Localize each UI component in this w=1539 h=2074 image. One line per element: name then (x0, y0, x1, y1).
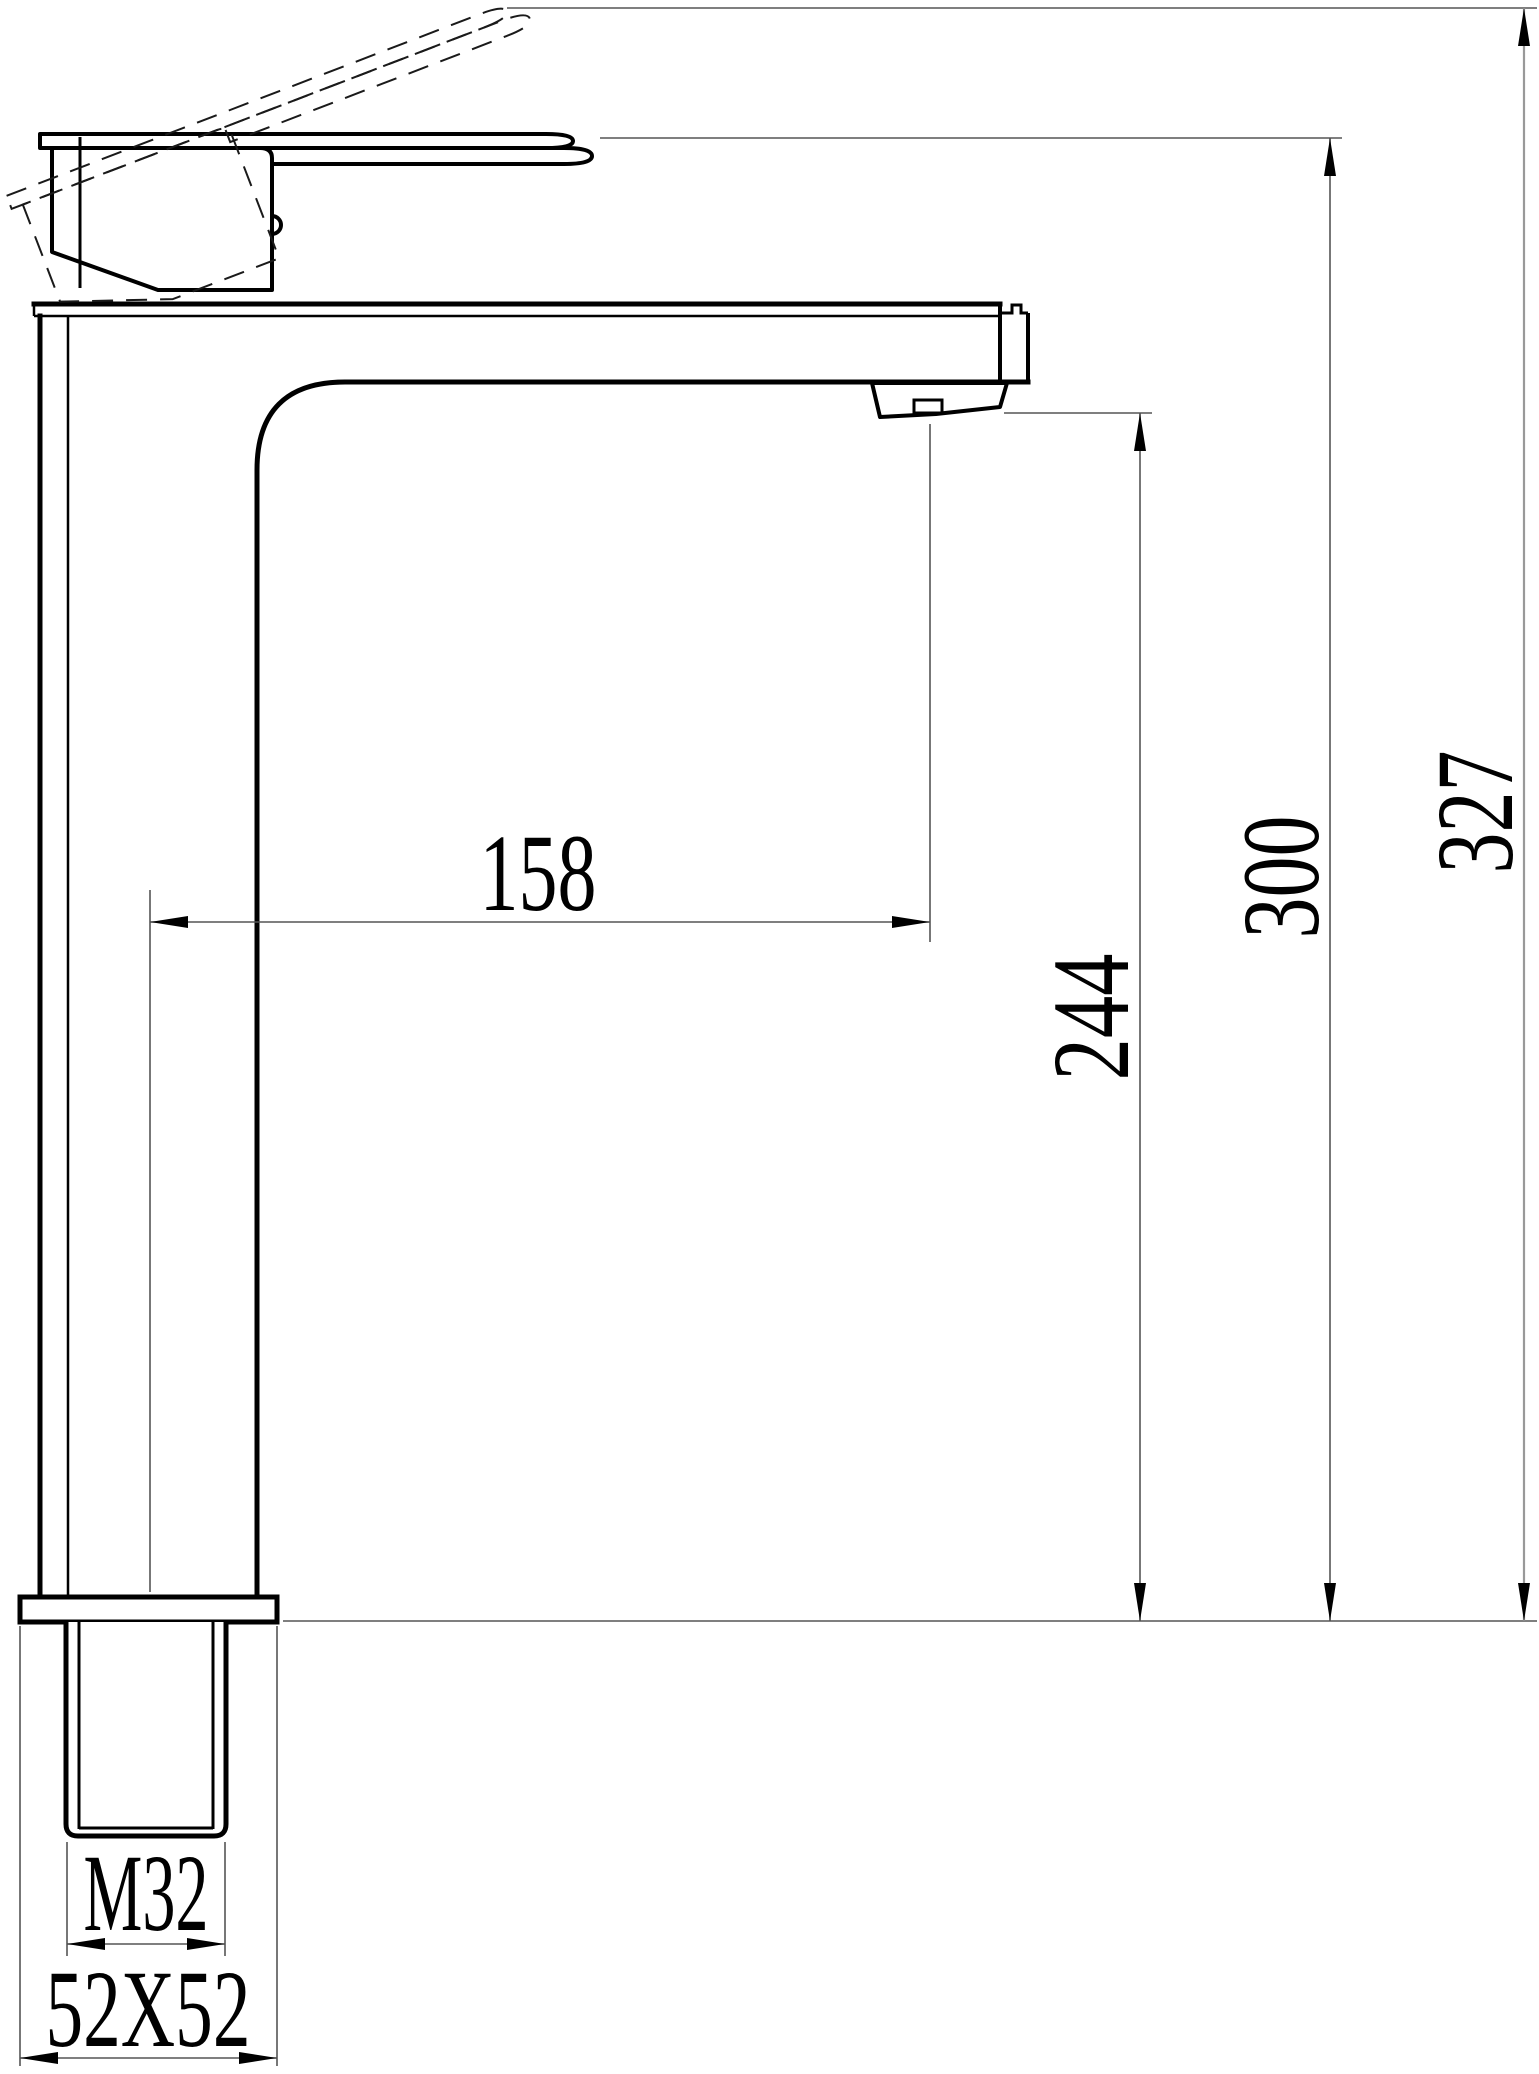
threaded-shank (66, 1622, 226, 1836)
faucet-technical-drawing-page: 158 244 300 327 (0, 0, 1539, 2074)
dim-text-m32: M32 (84, 1832, 209, 1954)
arrowhead-up-icon (1134, 413, 1146, 451)
dim-text-158: 158 (480, 812, 597, 934)
lever-handle (40, 134, 592, 290)
dim-text-244: 244 (1030, 954, 1152, 1081)
dim-text-300: 300 (1220, 816, 1342, 939)
lever-base-housing (52, 148, 272, 290)
arrowhead-right-icon (892, 916, 930, 928)
lever-top-plate (40, 134, 573, 148)
spout (34, 304, 1028, 1597)
arrowhead-down-icon (1324, 1583, 1336, 1621)
aerator-nozzle (914, 400, 942, 413)
dashed-lever-lower-blade (224, 11, 532, 142)
dim-text-327: 327 (1414, 751, 1536, 874)
dimension-annotations: 158 244 300 327 (20, 8, 1537, 2070)
faucet-technical-drawing: 158 244 300 327 (0, 0, 1539, 2074)
riser-right-wall-and-spout-underside (257, 382, 1028, 1597)
mounting-base (20, 1597, 277, 1836)
arrowhead-up-icon (1518, 8, 1530, 46)
arrowhead-down-icon (1134, 1583, 1146, 1621)
faucet-body (20, 134, 1028, 1836)
spout-endcap-step (1000, 305, 1028, 313)
dim-thread-size: M32 (67, 1832, 225, 1956)
lever-lower-blade (268, 148, 592, 164)
dim-text-52x52: 52X52 (46, 1948, 251, 2070)
dim-outlet-height: 244 (1004, 413, 1152, 1621)
arrowhead-up-icon (1324, 138, 1336, 176)
arrowhead-down-icon (1518, 1583, 1530, 1621)
dim-spout-reach: 158 (150, 424, 930, 1592)
dim-body-height: 300 (600, 138, 1342, 1621)
base-flange (20, 1597, 277, 1622)
arrowhead-left-icon (150, 916, 188, 928)
dim-overall-height: 327 (507, 8, 1537, 1621)
